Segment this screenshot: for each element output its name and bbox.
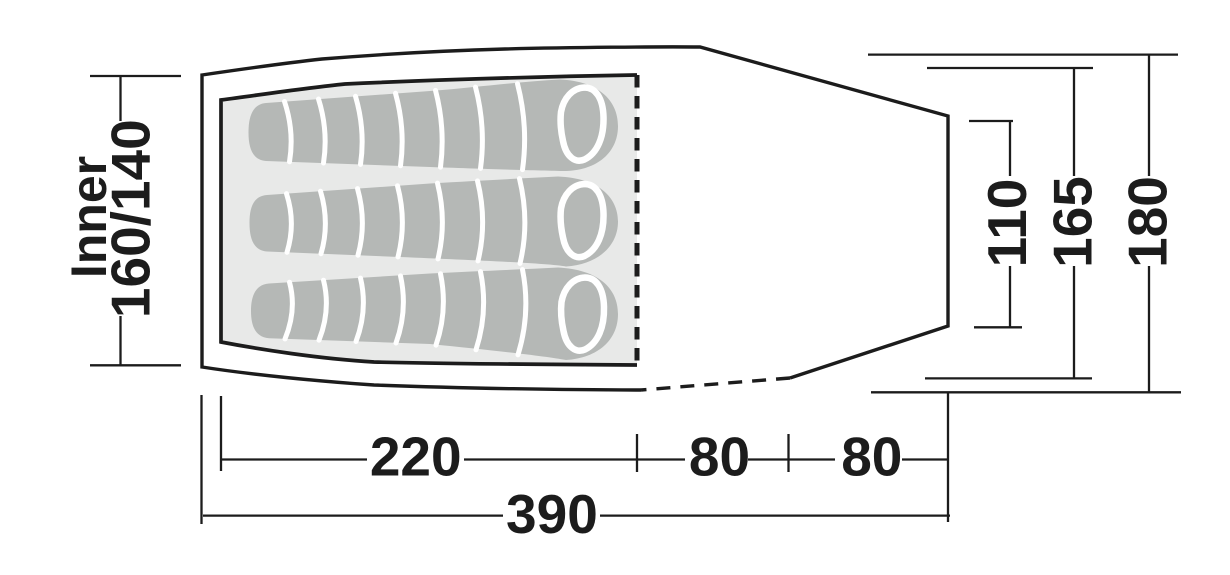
svg-text:80: 80 [841, 425, 902, 487]
svg-text:80: 80 [689, 425, 750, 487]
svg-text:180: 180 [1116, 176, 1178, 268]
svg-text:390: 390 [506, 483, 598, 545]
svg-text:160/140: 160/140 [100, 119, 162, 318]
svg-text:110: 110 [976, 179, 1038, 268]
svg-text:220: 220 [370, 425, 462, 487]
svg-text:165: 165 [1042, 176, 1104, 268]
